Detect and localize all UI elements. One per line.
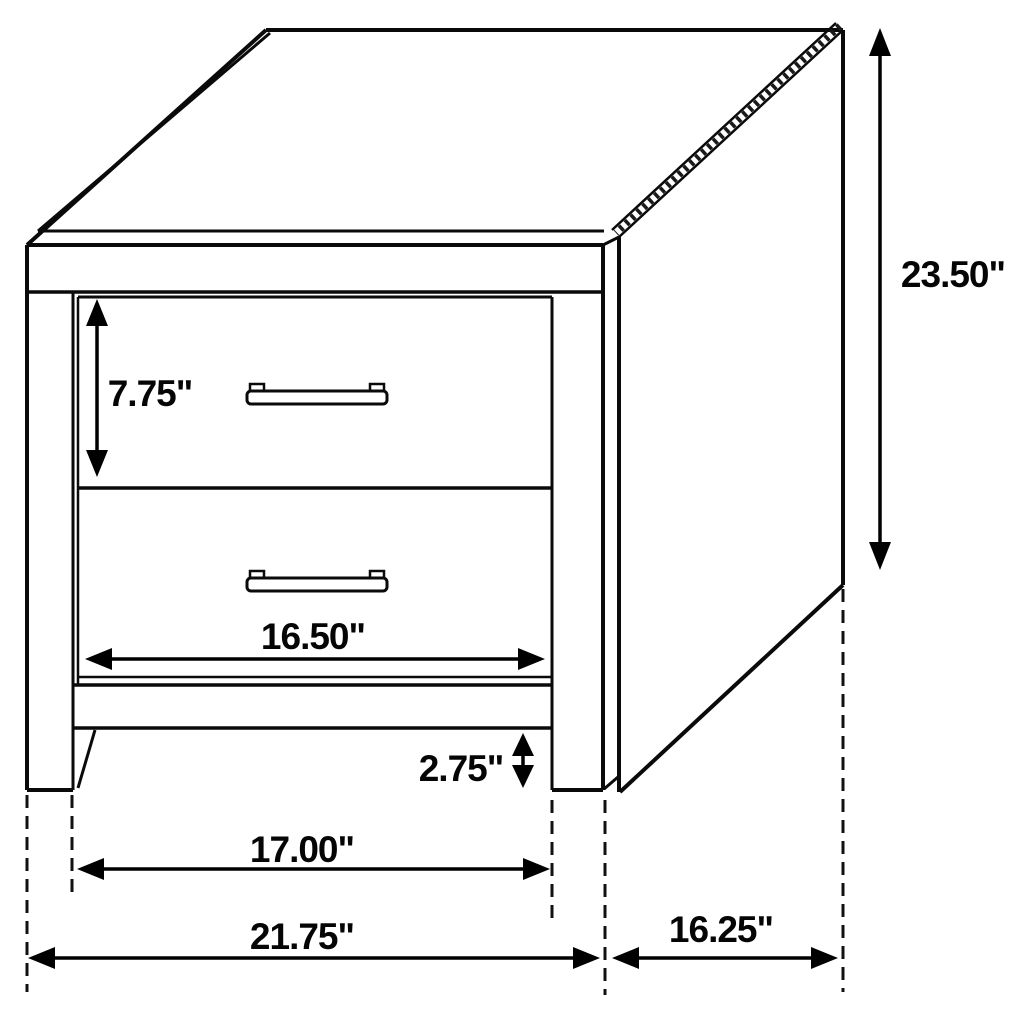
arrowhead-up <box>869 28 891 56</box>
top-right-edge-inner <box>612 23 836 230</box>
diagram-canvas: 7.75" 23.50" 16.50" 2.75" 17 <box>0 0 1024 1024</box>
arrowhead-up <box>86 299 108 326</box>
arrowhead-left <box>28 947 55 969</box>
drawer-handle <box>247 578 387 591</box>
drawer-handle <box>247 391 387 404</box>
dimension-leg-clearance: 2.75" <box>419 733 534 789</box>
dimension-label: 7.75" <box>108 373 193 414</box>
nightstand-top <box>27 23 843 245</box>
dimension-drawer-height: 7.75" <box>86 299 192 477</box>
dimension-label: 2.75" <box>419 748 504 789</box>
left-leg-side-edge <box>78 730 95 788</box>
dimension-label: 21.75" <box>250 916 354 957</box>
dimension-depth: 16.25" <box>612 909 838 969</box>
arrowhead-right <box>523 858 550 880</box>
dimension-inner-width: 17.00" <box>77 829 550 880</box>
top-front-right-corner <box>603 237 619 245</box>
furniture-dimension-diagram: 7.75" 23.50" 16.50" 2.75" 17 <box>0 0 1024 1024</box>
arrowhead-right <box>811 947 838 969</box>
arrowhead-right <box>518 648 545 670</box>
dimension-drawer-width: 16.50" <box>85 616 545 670</box>
top-right-edge-hatching <box>616 26 840 233</box>
dimension-label: 17.00" <box>250 829 354 870</box>
arrowhead-down <box>86 450 108 477</box>
arrowhead-left <box>77 858 104 880</box>
top-right-edge-outer <box>619 30 843 237</box>
dimension-overall-height: 23.50" <box>869 28 1005 570</box>
arrowhead-left <box>612 947 639 969</box>
dimension-label: 16.25" <box>669 909 773 950</box>
top-left-edge-inner <box>38 33 270 231</box>
arrowhead-down <box>512 765 534 788</box>
dimension-label: 16.50" <box>261 616 365 657</box>
dimension-overall-width: 21.75" <box>28 916 600 969</box>
arrowhead-right <box>573 947 600 969</box>
nightstand-front-frame <box>27 245 618 790</box>
arrowhead-down <box>869 542 891 570</box>
right-leg-side-edge <box>604 777 618 789</box>
nightstand-side-panel <box>619 30 843 792</box>
arrowhead-up <box>512 733 534 756</box>
dimension-label: 23.50" <box>901 254 1005 295</box>
side-bottom-edge <box>620 585 843 792</box>
arrowhead-left <box>85 648 112 670</box>
